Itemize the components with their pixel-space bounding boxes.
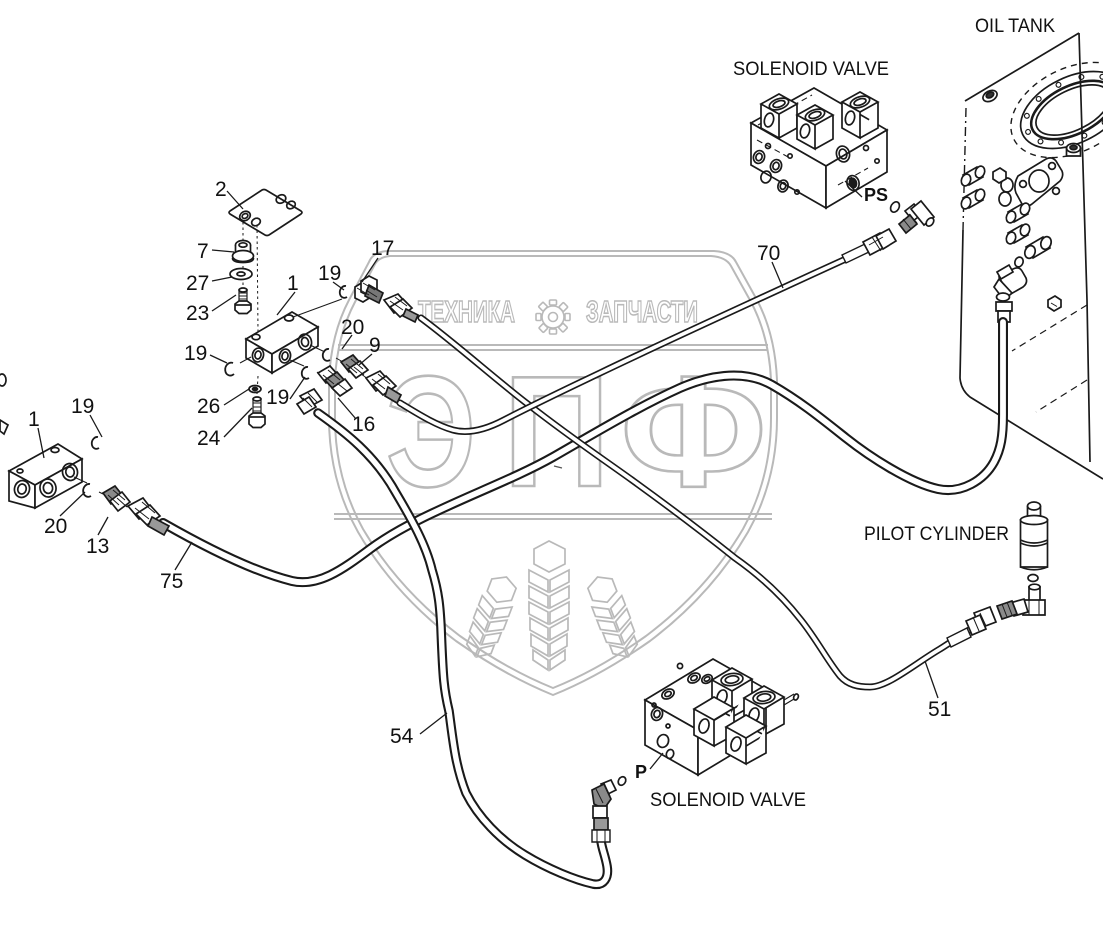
- svg-text:ЗАПЧАСТИ: ЗАПЧАСТИ: [586, 294, 698, 329]
- svg-text:13: 13: [86, 535, 109, 558]
- svg-text:P: P: [635, 762, 647, 782]
- svg-text:27: 27: [186, 272, 209, 295]
- svg-text:75: 75: [160, 570, 183, 593]
- svg-text:19: 19: [71, 395, 94, 418]
- svg-text:20: 20: [341, 316, 364, 339]
- svg-text:1: 1: [28, 408, 40, 431]
- svg-text:17: 17: [371, 237, 394, 260]
- svg-text:23: 23: [186, 302, 209, 325]
- svg-text:19: 19: [184, 342, 207, 365]
- svg-text:1: 1: [287, 272, 299, 295]
- svg-text:16: 16: [352, 413, 375, 436]
- svg-text:PILOT CYLINDER: PILOT CYLINDER: [864, 523, 1009, 545]
- svg-text:2: 2: [215, 178, 227, 201]
- svg-text:PS: PS: [864, 185, 888, 205]
- svg-text:OIL TANK: OIL TANK: [975, 15, 1055, 37]
- svg-text:SOLENOID VALVE: SOLENOID VALVE: [650, 789, 806, 811]
- svg-text:9: 9: [369, 334, 381, 357]
- svg-text:Ф: Ф: [620, 344, 767, 520]
- svg-text:51: 51: [928, 698, 951, 721]
- svg-text:20: 20: [44, 515, 67, 538]
- svg-text:70: 70: [757, 242, 780, 265]
- svg-text:7: 7: [197, 240, 209, 263]
- svg-text:26: 26: [197, 395, 220, 418]
- svg-text:19: 19: [318, 262, 341, 285]
- svg-text:54: 54: [390, 725, 414, 748]
- svg-text:19: 19: [266, 386, 289, 409]
- svg-text:SOLENOID VALVE: SOLENOID VALVE: [733, 58, 889, 80]
- svg-text:24: 24: [197, 427, 221, 450]
